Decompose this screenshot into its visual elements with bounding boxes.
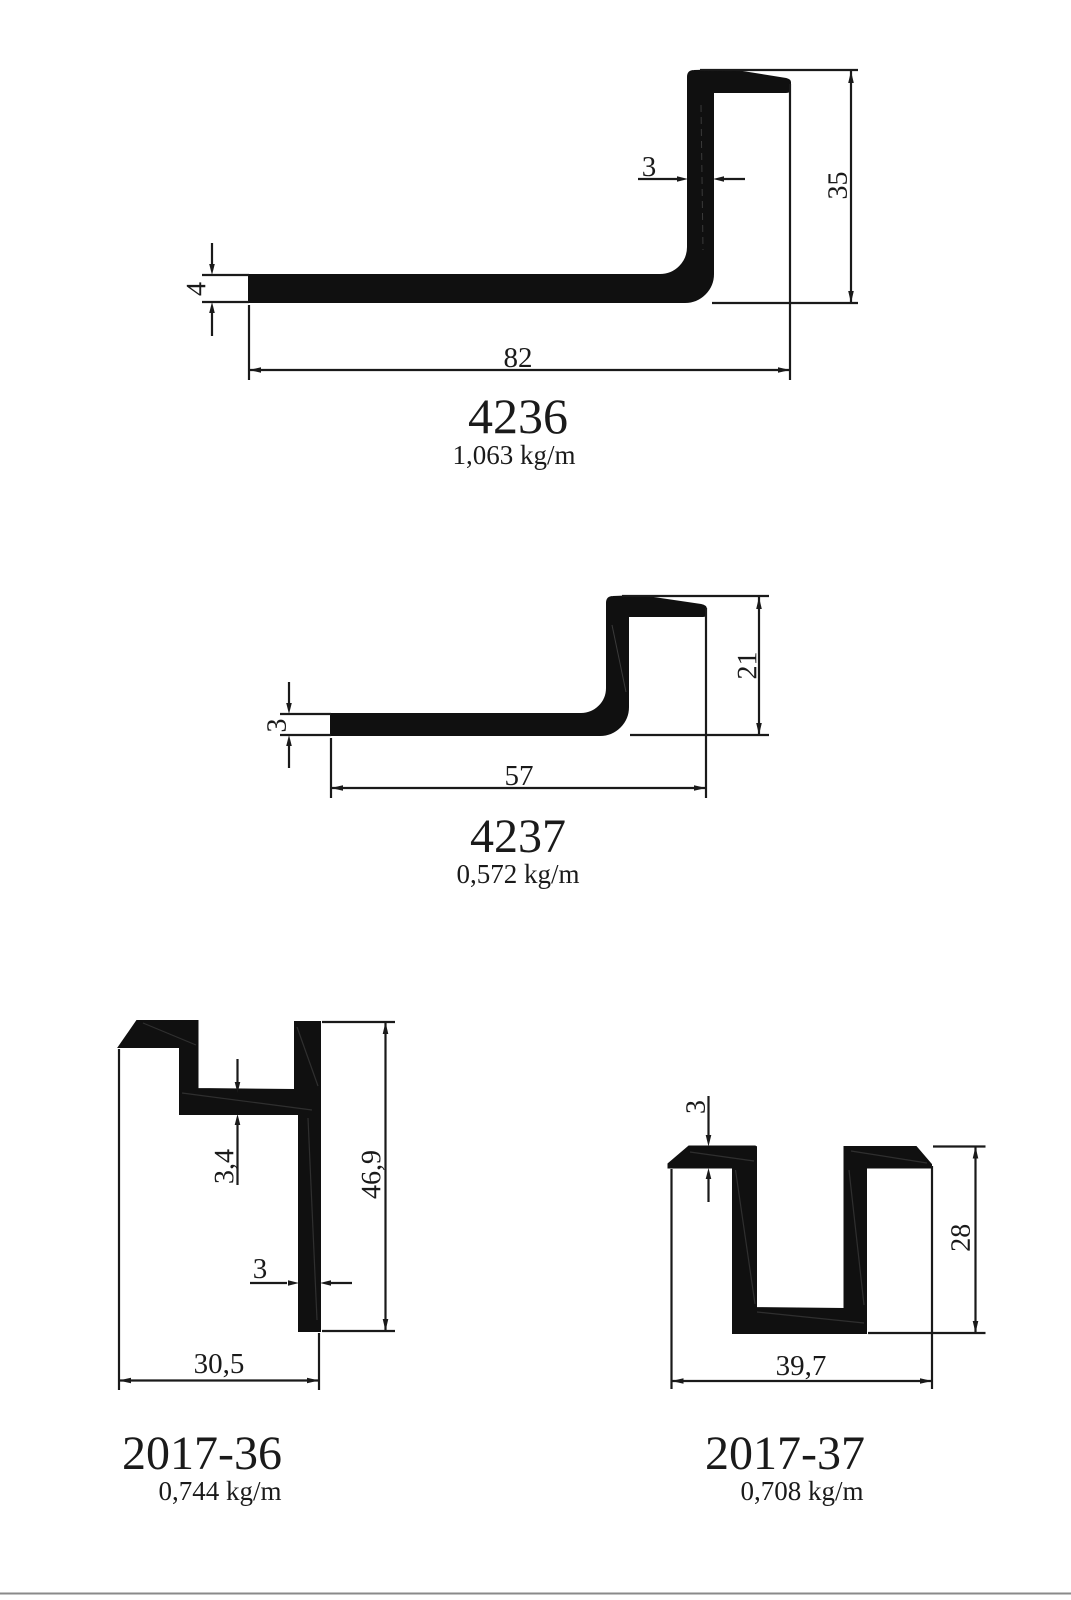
svg-text:4236: 4236 [468,388,568,444]
svg-text:30,5: 30,5 [194,1348,245,1380]
svg-text:39,7: 39,7 [776,1350,827,1382]
svg-text:0,708 kg/m: 0,708 kg/m [740,1476,863,1506]
svg-text:1,063 kg/m: 1,063 kg/m [452,440,575,470]
svg-text:0,744 kg/m: 0,744 kg/m [158,1476,281,1506]
svg-text:82: 82 [504,342,533,374]
svg-text:4237: 4237 [470,810,566,863]
svg-text:3: 3 [642,151,657,183]
svg-text:0,572 kg/m: 0,572 kg/m [456,859,579,889]
svg-text:57: 57 [505,760,534,792]
svg-text:2017-36: 2017-36 [122,1427,282,1480]
svg-text:2017-37: 2017-37 [705,1427,865,1480]
svg-text:3: 3 [253,1253,268,1285]
